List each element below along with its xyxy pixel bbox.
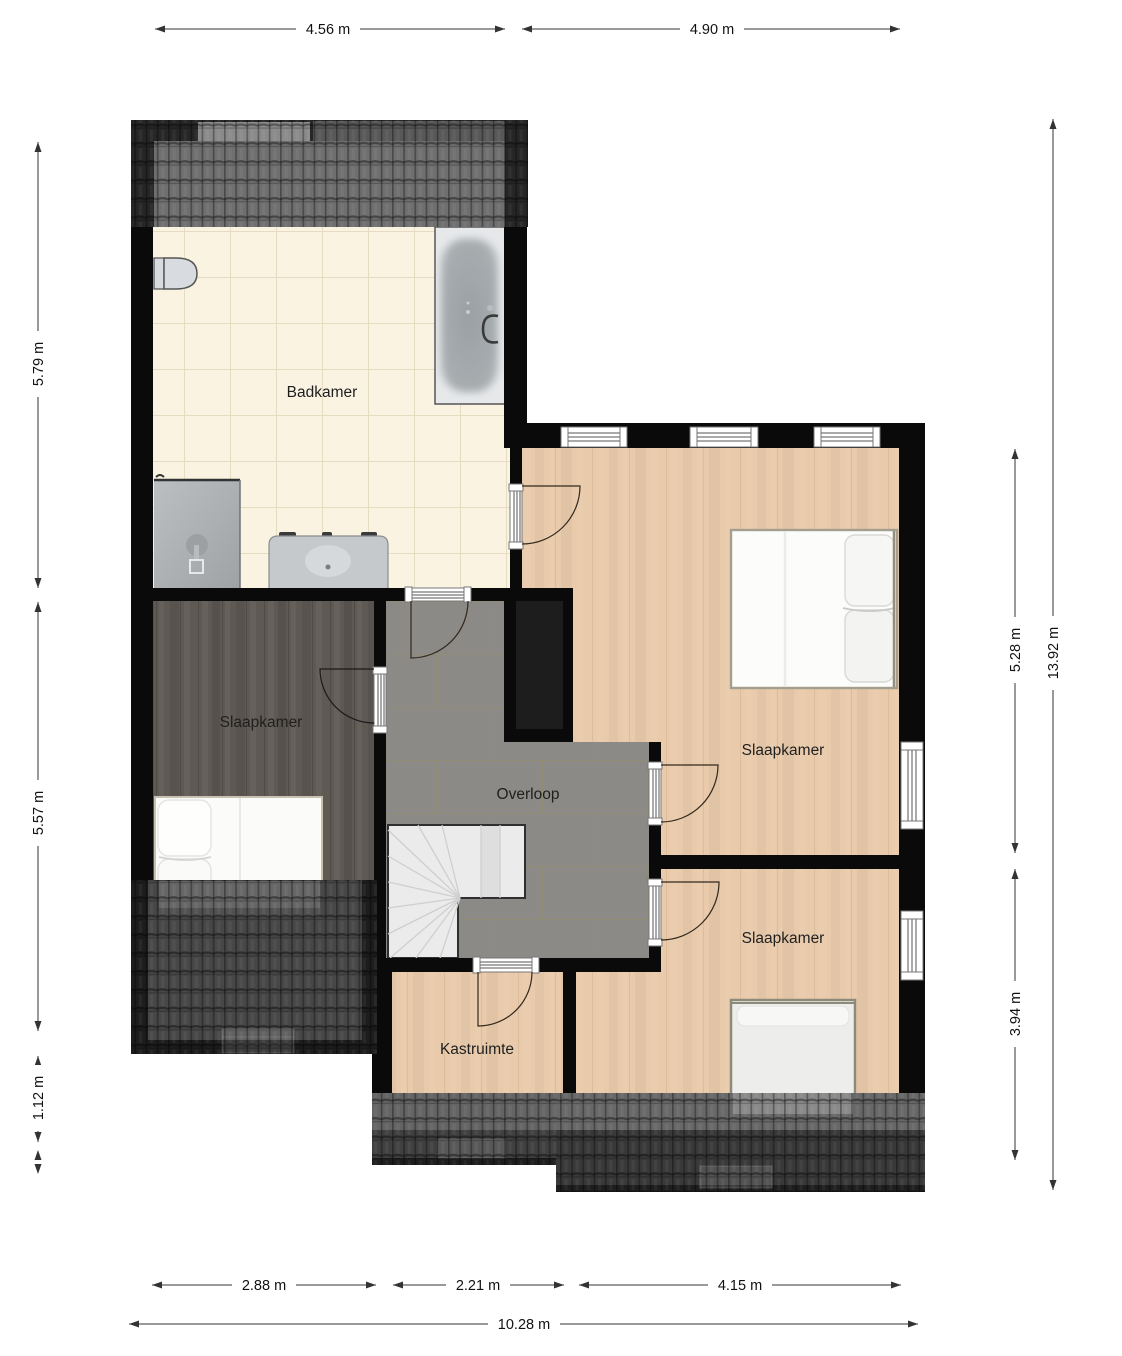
svg-text:Slaapkamer: Slaapkamer	[742, 742, 825, 759]
svg-text:13.92 m: 13.92 m	[1046, 627, 1062, 679]
svg-text:Kastruimte: Kastruimte	[440, 1041, 514, 1058]
svg-text:5.28 m: 5.28 m	[1008, 628, 1024, 672]
svg-text:2.88 m: 2.88 m	[242, 1278, 286, 1294]
svg-text:4.56 m: 4.56 m	[306, 22, 350, 38]
svg-text:2.21 m: 2.21 m	[456, 1278, 500, 1294]
svg-text:4.15 m: 4.15 m	[718, 1278, 762, 1294]
svg-text:10.28 m: 10.28 m	[498, 1317, 550, 1333]
svg-text:3.94 m: 3.94 m	[1008, 992, 1024, 1036]
svg-text:5.57 m: 5.57 m	[31, 791, 47, 835]
svg-text:1.12 m: 1.12 m	[31, 1076, 47, 1120]
svg-text:5.79 m: 5.79 m	[31, 342, 47, 386]
svg-text:Slaapkamer: Slaapkamer	[220, 714, 303, 731]
svg-text:Slaapkamer: Slaapkamer	[742, 930, 825, 947]
svg-text:Overloop: Overloop	[497, 786, 560, 803]
svg-text:Badkamer: Badkamer	[287, 384, 358, 401]
svg-text:4.90 m: 4.90 m	[690, 22, 734, 38]
